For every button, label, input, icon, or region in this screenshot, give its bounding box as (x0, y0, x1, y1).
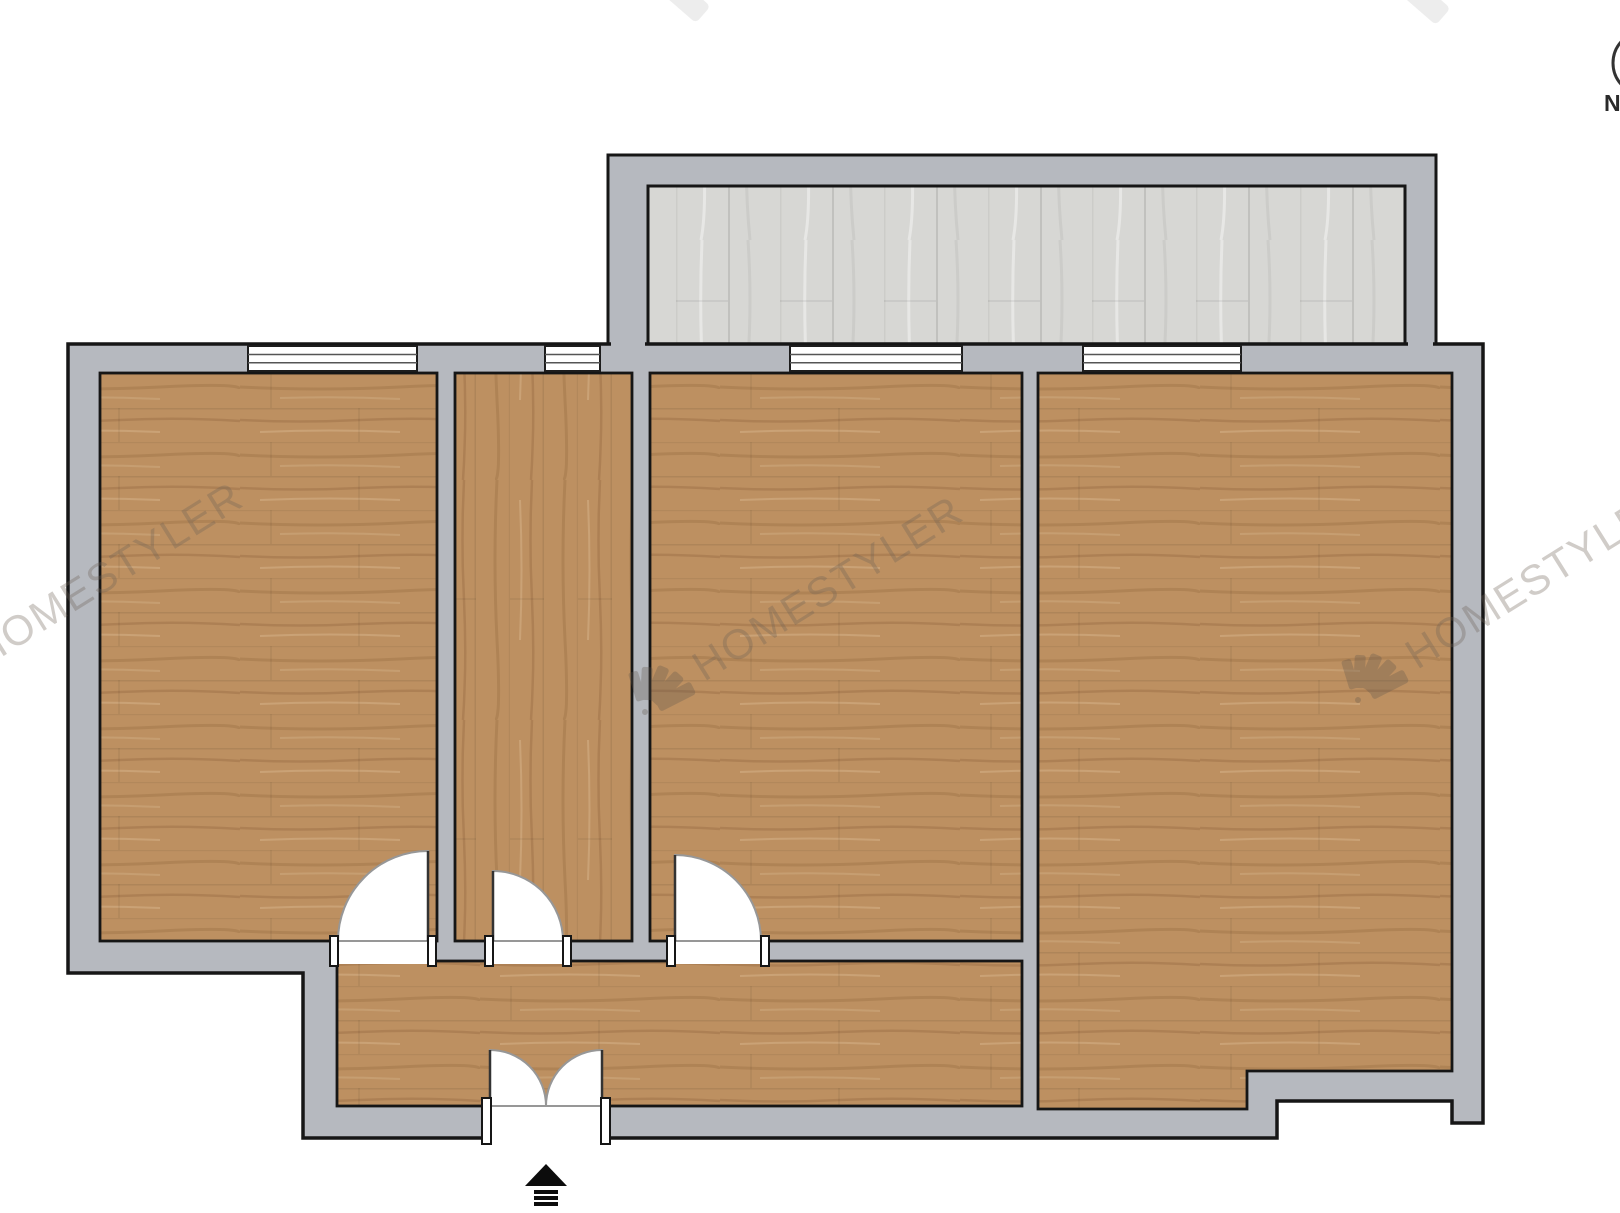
window-4[interactable] (1083, 346, 1241, 371)
window-1[interactable] (248, 346, 417, 371)
room-2-floor[interactable] (455, 373, 632, 941)
north-label: N (1604, 90, 1620, 116)
entrance-arrow-icon (525, 1164, 567, 1206)
floor-plan-svg: N HOMESTYLER HOMESTYLER HOMESTYLER (0, 0, 1620, 1213)
wall-junction-right (1408, 330, 1433, 358)
north-compass-icon: N (1604, 31, 1620, 116)
room-4-floor[interactable] (1038, 373, 1452, 1109)
door-jamb (667, 936, 675, 966)
door-jamb (563, 936, 571, 966)
homestyler-logo-icon (1363, 0, 1488, 26)
room-1-floor[interactable] (100, 373, 437, 941)
door-jamb (482, 1098, 491, 1144)
door-jamb (761, 936, 769, 966)
door-jamb (485, 936, 493, 966)
door-jamb (428, 936, 436, 966)
window-3[interactable] (790, 346, 962, 371)
homestyler-logo-icon (623, 0, 748, 24)
floorplan-canvas: N HOMESTYLER HOMESTYLER HOMESTYLER (0, 0, 1620, 1213)
door-jamb (601, 1098, 610, 1144)
door-jamb (330, 936, 338, 966)
corridor-floor[interactable] (337, 961, 1022, 1106)
window-2[interactable] (545, 346, 600, 371)
balcony-floor[interactable] (648, 186, 1405, 344)
wall-junction-left (611, 330, 645, 358)
